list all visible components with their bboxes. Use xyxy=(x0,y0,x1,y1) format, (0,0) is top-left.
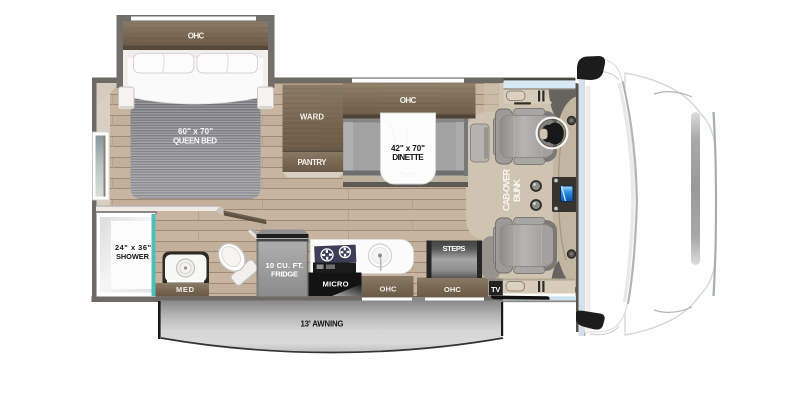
svg-text:OHC: OHC xyxy=(444,285,462,294)
svg-text:WARD: WARD xyxy=(300,112,324,121)
svg-text:TV: TV xyxy=(491,285,501,294)
svg-text:SHOWER: SHOWER xyxy=(116,252,150,261)
svg-text:42" x 70": 42" x 70" xyxy=(391,144,425,153)
svg-text:FRIDGE: FRIDGE xyxy=(271,269,298,278)
svg-text:13' AWNING: 13' AWNING xyxy=(301,320,344,329)
svg-text:MED: MED xyxy=(176,285,195,294)
svg-text:QUEEN BED: QUEEN BED xyxy=(173,137,217,146)
svg-text:STEPS: STEPS xyxy=(443,244,466,253)
svg-text:OHC: OHC xyxy=(380,285,398,294)
svg-text:PANTRY: PANTRY xyxy=(298,158,328,167)
svg-text:OHC: OHC xyxy=(400,96,417,105)
svg-text:MICRO: MICRO xyxy=(323,280,349,289)
svg-text:60" x 70": 60" x 70" xyxy=(178,127,213,136)
svg-text:OHC: OHC xyxy=(188,31,205,40)
svg-text:24" x 36": 24" x 36" xyxy=(115,243,151,252)
svg-text:CAB-OVER: CAB-OVER xyxy=(501,169,511,211)
svg-text:DINETTE: DINETTE xyxy=(392,153,424,162)
svg-text:BUNK: BUNK xyxy=(512,179,522,202)
